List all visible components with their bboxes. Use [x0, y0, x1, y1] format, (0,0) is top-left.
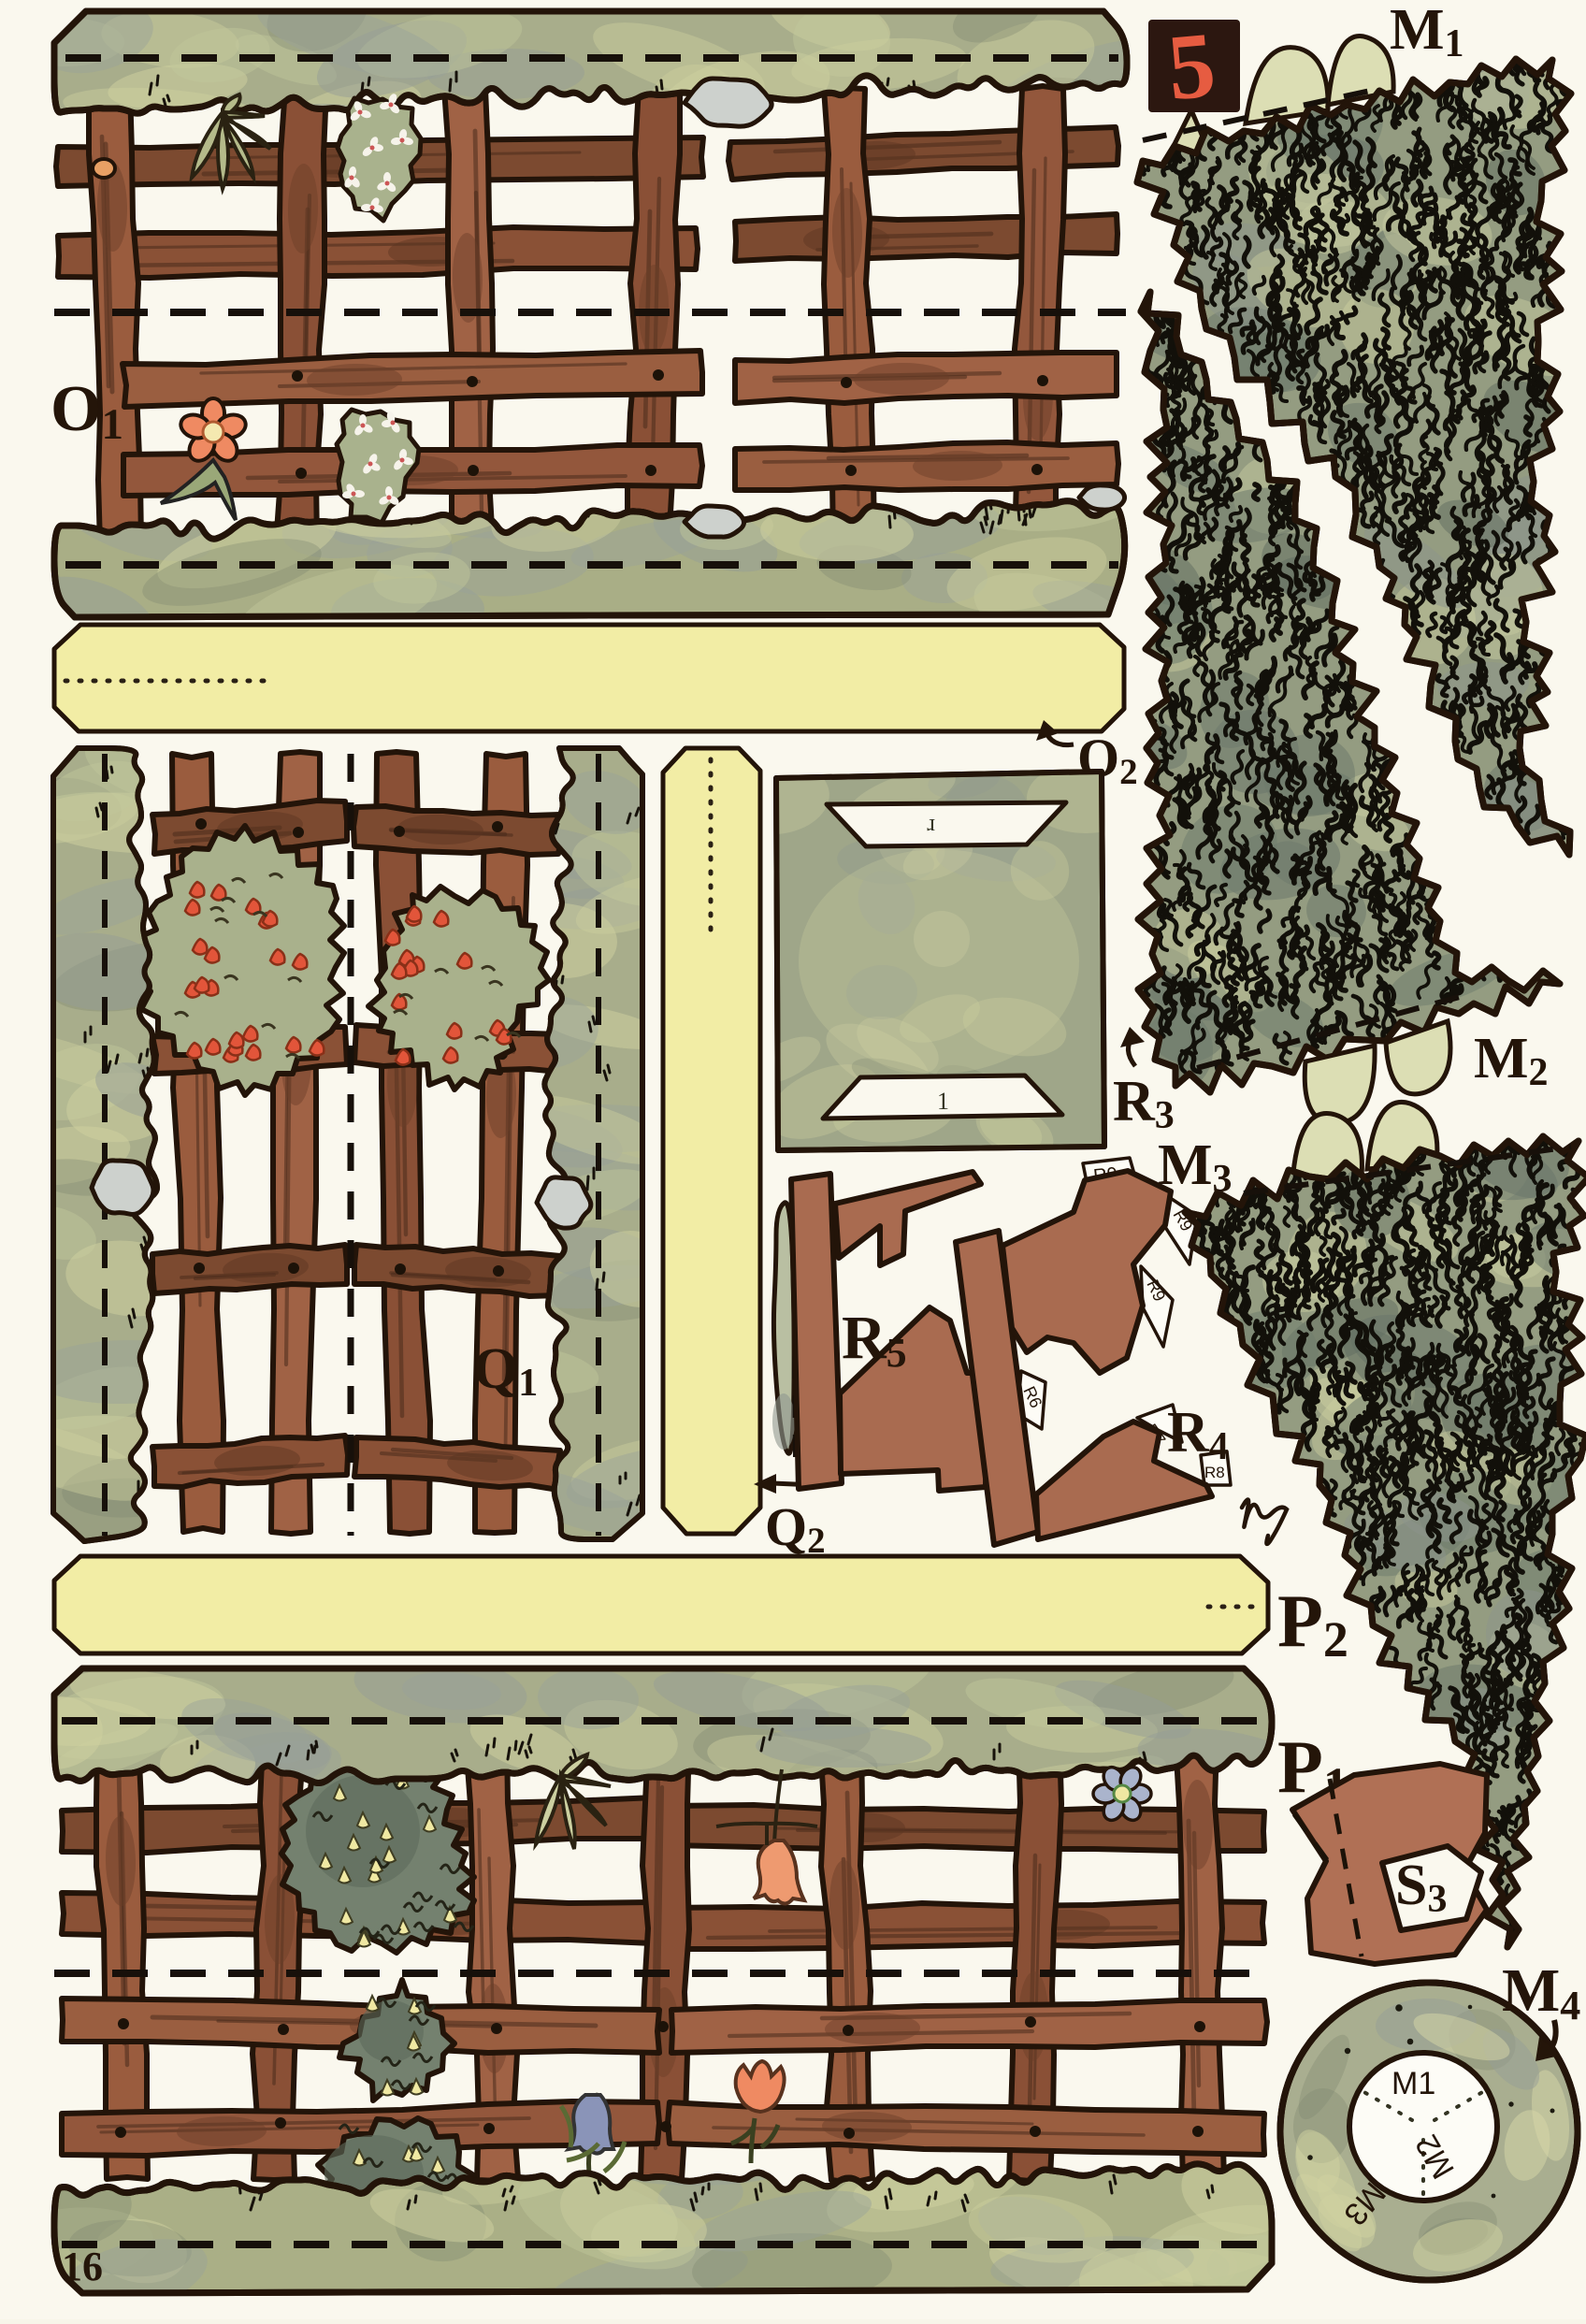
svg-text:r: r [927, 814, 935, 841]
svg-text:M1: M1 [1391, 2066, 1435, 2101]
svg-text:16: 16 [62, 2244, 103, 2289]
svg-text:5: 5 [1163, 12, 1218, 120]
svg-text:1: 1 [937, 1088, 949, 1115]
